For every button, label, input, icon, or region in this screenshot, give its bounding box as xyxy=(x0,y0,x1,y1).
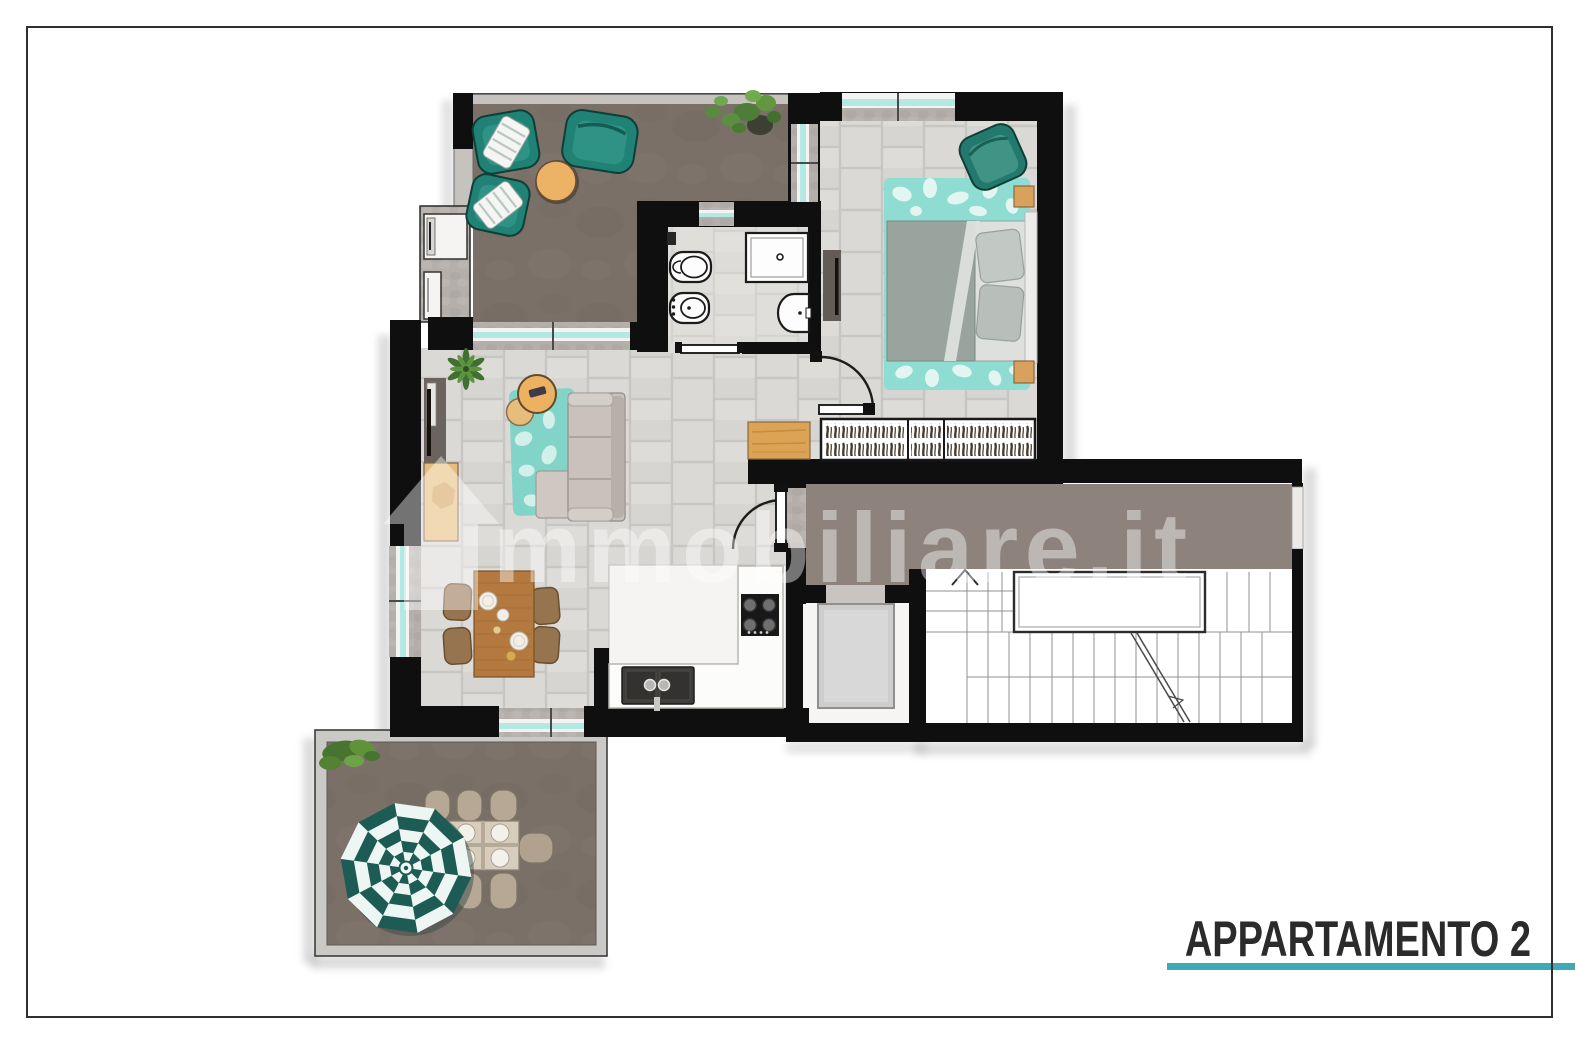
svg-text:mmobiliare.it: mmobiliare.it xyxy=(493,492,1194,603)
svg-text:APPARTAMENTO 2: APPARTAMENTO 2 xyxy=(1185,912,1531,967)
